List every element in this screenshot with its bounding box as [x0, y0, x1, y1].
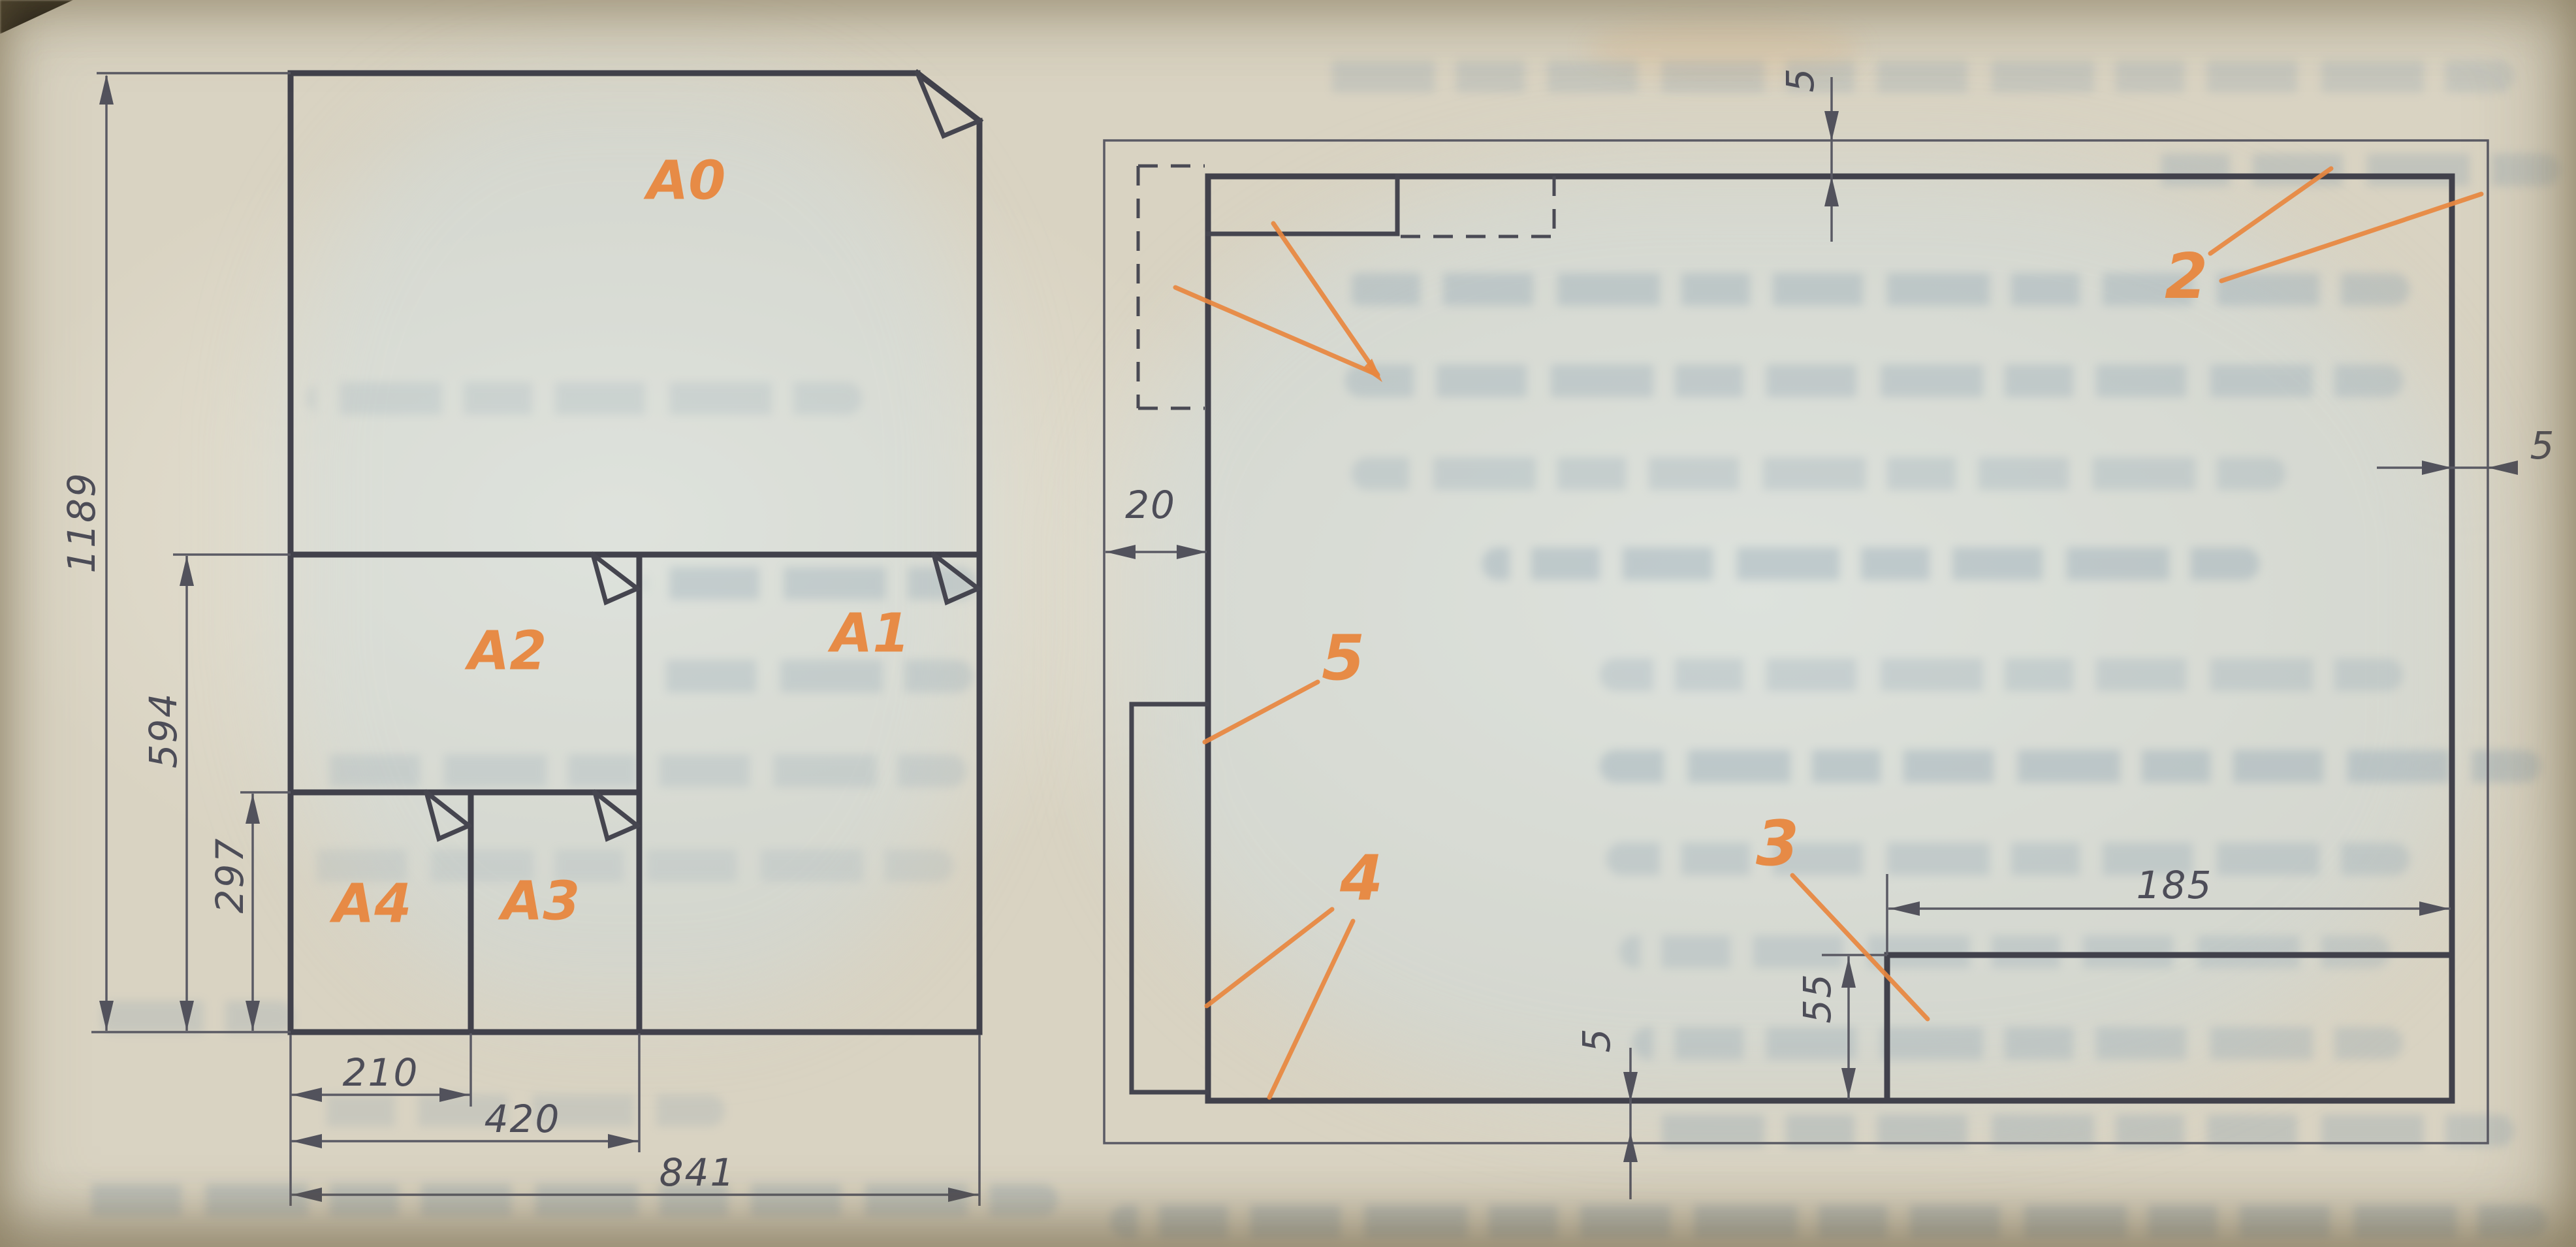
- title-block: [1887, 955, 2452, 1101]
- margin-dashed-box: [1138, 166, 1205, 408]
- callout-5-leader: [1205, 682, 1318, 742]
- arrowhead: [99, 74, 114, 105]
- callout-2-leader: [2221, 194, 2481, 281]
- fold-corner-a3: [595, 792, 637, 839]
- arrowhead: [608, 1134, 638, 1148]
- dim-420: 420: [485, 1097, 561, 1141]
- arrowhead: [1623, 1132, 1638, 1162]
- top-table-dashed: [1401, 176, 1554, 236]
- callout-2: 2: [2165, 241, 2208, 313]
- dim-594: 594: [141, 692, 185, 769]
- arrowhead: [292, 1134, 322, 1148]
- callout-2-leader: [2210, 169, 2331, 253]
- arrowhead: [292, 1188, 322, 1202]
- fold-corner-a1: [934, 555, 978, 602]
- arrowhead: [2488, 461, 2518, 475]
- dim-margin-left: 20: [1125, 483, 1176, 527]
- arrowhead: [948, 1188, 978, 1202]
- arrowhead: [246, 794, 260, 824]
- arrowhead: [1105, 545, 1136, 559]
- callout-3: 3: [1756, 808, 1799, 880]
- arrowhead: [2419, 901, 2449, 916]
- extension-lines: [91, 73, 291, 1032]
- drawing-frame: [1208, 176, 2452, 1101]
- top-table-solid: [1208, 176, 1397, 234]
- side-column: [1132, 704, 1207, 1092]
- arrowhead: [292, 1088, 322, 1102]
- format-sizes-diagram: 1189 594 297 210 420 841 A0 A1 A2 A3 A4: [59, 73, 979, 1206]
- arrowhead: [246, 1001, 260, 1031]
- unlabeled-leader-arrowhead: [1363, 359, 1382, 382]
- arrowhead: [1824, 111, 1839, 141]
- fold-corner-a2: [593, 555, 637, 602]
- arrowhead: [1841, 1068, 1856, 1098]
- format-label-a3: A3: [498, 871, 580, 933]
- callout-4-leader: [1207, 909, 1332, 1006]
- dim-title-height: 55: [1795, 973, 1839, 1024]
- dim-210: 210: [343, 1050, 419, 1095]
- arrowhead: [99, 1001, 114, 1031]
- horizontal-dimension-lines: [291, 1095, 979, 1195]
- dim-margin-right: 5: [2530, 423, 2556, 468]
- callout-5: 5: [1322, 623, 1365, 694]
- book-page-photo: 1189 594 297 210 420 841 A0 A1 A2 A3 A4: [0, 0, 2576, 1247]
- callout-4: 4: [1339, 843, 1383, 915]
- format-label-a4: A4: [329, 873, 412, 935]
- arrowhead: [1841, 958, 1856, 988]
- figure-canvas: 1189 594 297 210 420 841 A0 A1 A2 A3 A4: [0, 0, 2576, 1247]
- dim-margin-bottom: 5: [1574, 1028, 1619, 1053]
- format-label-a1: A1: [827, 603, 910, 665]
- arrowhead: [439, 1088, 469, 1102]
- arrowhead: [180, 1001, 194, 1031]
- fold-corner-a4: [426, 792, 469, 839]
- arrowhead: [1890, 901, 1920, 916]
- dim-297: 297: [208, 837, 252, 914]
- arrowhead: [2422, 461, 2452, 475]
- dim-margin-top: 5: [1778, 67, 1822, 93]
- dim-title-width: 185: [2137, 863, 2213, 907]
- arrowhead: [1623, 1072, 1638, 1102]
- dim-841: 841: [660, 1150, 736, 1195]
- arrowhead: [1177, 545, 1207, 559]
- arrowhead: [1824, 176, 1839, 206]
- dim-1189: 1189: [59, 472, 104, 574]
- format-label-a2: A2: [464, 621, 547, 683]
- sheet-layout-diagram: 5 5 20 5 185 55 2 3 4 5: [1104, 67, 2555, 1199]
- arrowhead: [180, 556, 194, 586]
- format-label-a0: A0: [643, 150, 726, 212]
